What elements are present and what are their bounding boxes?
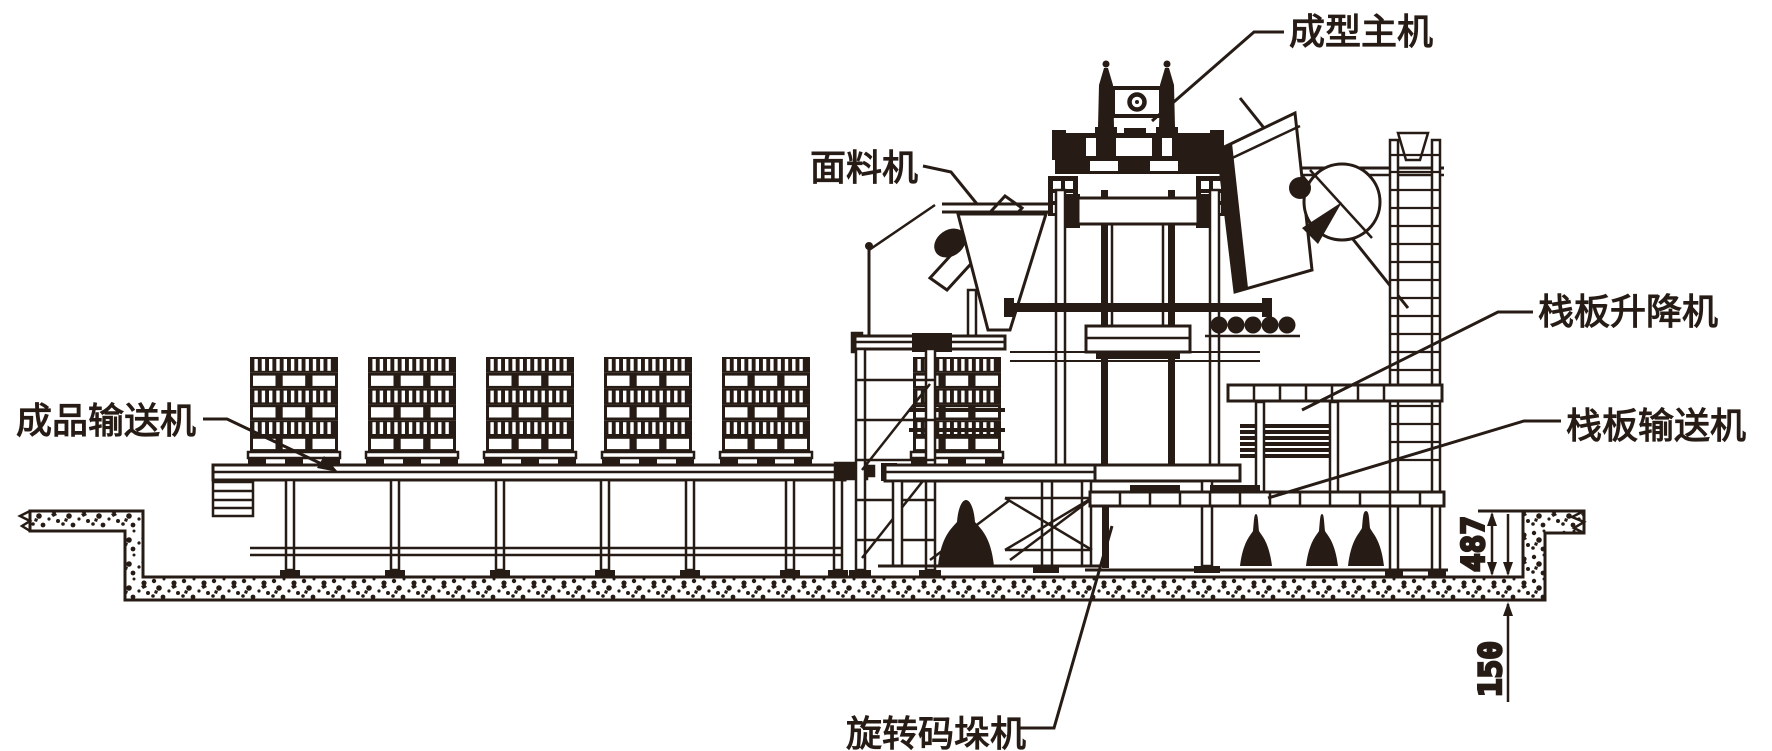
label-pallet-lifter: 栈板升降机	[1538, 292, 1718, 332]
roller-row	[1211, 317, 1296, 334]
bell-foot	[938, 500, 994, 566]
leader-face-material-machine	[923, 166, 977, 204]
leader-rotary-stacker	[1018, 526, 1112, 728]
bell-foot	[1348, 511, 1384, 566]
bell-foot	[1240, 514, 1272, 566]
dim-pit-depth: 487	[1456, 516, 1492, 572]
label-rotary-stacker: 旋转码垛机	[846, 714, 1026, 751]
dimension-annotations: 487 150	[1456, 512, 1513, 702]
label-face-material-machine: 面料机	[810, 148, 918, 188]
rotary-stacker-drawing	[878, 463, 1100, 566]
block-stacks	[248, 357, 1005, 466]
label-forming-machine: 成型主机	[1289, 12, 1433, 52]
label-product-conveyor: 成品输送机	[16, 401, 196, 441]
dim-foundation-depth: 150	[1473, 641, 1509, 697]
pallet-stack	[1240, 424, 1332, 458]
line-drawing: 成品输送机 面料机 成型主机 栈板升降机 栈板输送机 旋转码垛机 487 150	[0, 0, 1772, 751]
diagram-canvas: 成品输送机 面料机 成型主机 栈板升降机 栈板输送机 旋转码垛机 487 150	[0, 0, 1772, 751]
bell-foot	[1306, 514, 1338, 566]
label-pallet-conveyor: 栈板输送机	[1566, 406, 1746, 446]
product-conveyor-machine	[213, 463, 874, 576]
